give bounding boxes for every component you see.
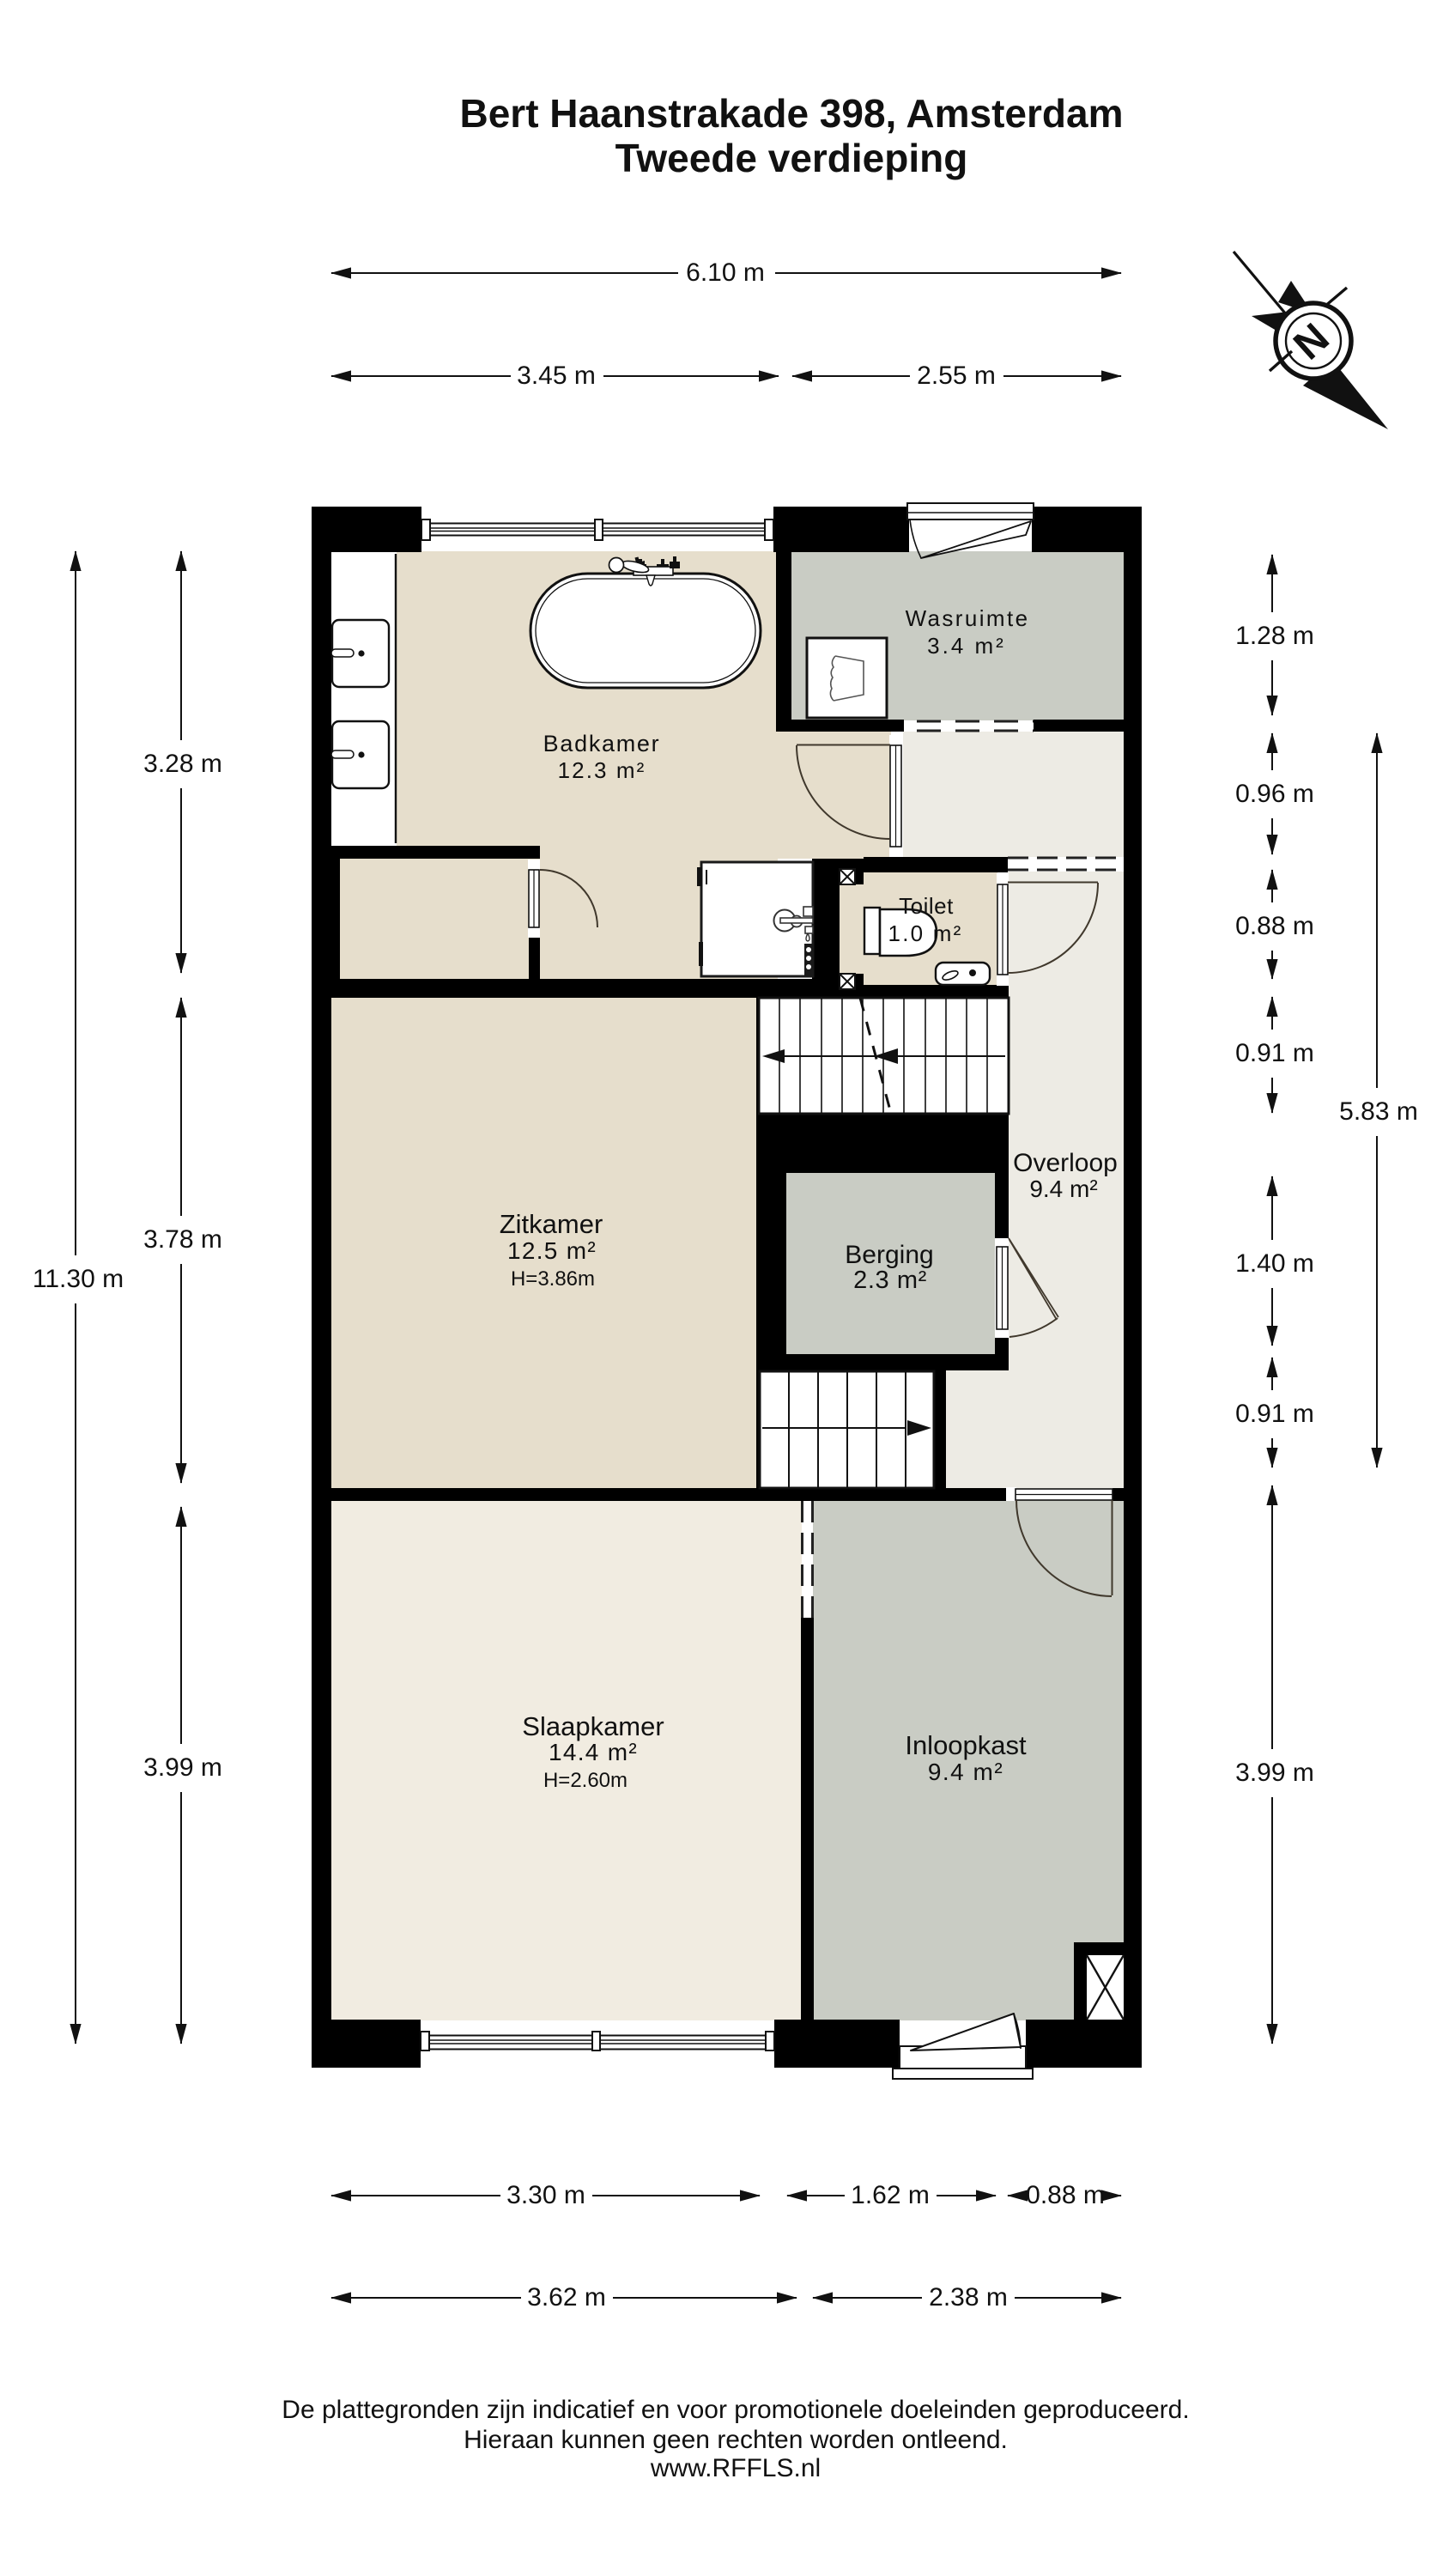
svg-text:De plattegronden zijn indicati: De plattegronden zijn indicatief en voor… bbox=[282, 2396, 1189, 2424]
svg-text:H=2.60m: H=2.60m bbox=[543, 1769, 627, 1792]
svg-text:12.5 m²: 12.5 m² bbox=[507, 1237, 597, 1264]
svg-text:2.38 m: 2.38 m bbox=[929, 2283, 1008, 2312]
svg-text:12.3 m²: 12.3 m² bbox=[558, 757, 646, 783]
svg-text:Toilet: Toilet bbox=[899, 893, 954, 919]
svg-text:1.40 m: 1.40 m bbox=[1235, 1249, 1314, 1278]
svg-text:11.30 m: 11.30 m bbox=[33, 1265, 124, 1293]
svg-text:3.45 m: 3.45 m bbox=[517, 361, 596, 390]
svg-text:Zitkamer: Zitkamer bbox=[500, 1209, 603, 1239]
svg-text:Overloop: Overloop bbox=[1013, 1149, 1118, 1177]
svg-text:Hieraan kunnen geen rechten wo: Hieraan kunnen geen rechten worden ontle… bbox=[464, 2426, 1008, 2454]
svg-text:0.91 m: 0.91 m bbox=[1235, 1039, 1314, 1067]
svg-text:3.30 m: 3.30 m bbox=[506, 2181, 585, 2209]
svg-text:Slaapkamer: Slaapkamer bbox=[522, 1711, 664, 1741]
svg-text:2.55 m: 2.55 m bbox=[917, 361, 996, 390]
svg-text:Badkamer: Badkamer bbox=[543, 731, 661, 756]
svg-text:Inloopkast: Inloopkast bbox=[905, 1730, 1027, 1760]
svg-text:2.3 m²: 2.3 m² bbox=[853, 1267, 927, 1294]
svg-text:0.88 m: 0.88 m bbox=[1235, 912, 1314, 940]
svg-text:1.28 m: 1.28 m bbox=[1235, 622, 1314, 650]
svg-text:H=3.86m: H=3.86m bbox=[511, 1267, 595, 1291]
svg-text:www.RFFLS.nl: www.RFFLS.nl bbox=[650, 2454, 821, 2482]
svg-text:Berging: Berging bbox=[845, 1241, 933, 1269]
svg-text:1.62 m: 1.62 m bbox=[851, 2181, 930, 2209]
svg-text:0.96 m: 0.96 m bbox=[1235, 780, 1314, 808]
svg-text:3.28 m: 3.28 m bbox=[143, 750, 222, 778]
svg-text:Wasruimte: Wasruimte bbox=[906, 605, 1030, 631]
svg-text:9.4 m²: 9.4 m² bbox=[1029, 1176, 1097, 1202]
svg-text:3.62 m: 3.62 m bbox=[527, 2283, 606, 2312]
svg-text:5.83 m: 5.83 m bbox=[1339, 1097, 1418, 1126]
svg-text:3.99 m: 3.99 m bbox=[1235, 1759, 1314, 1787]
svg-text:3.78 m: 3.78 m bbox=[143, 1225, 222, 1254]
svg-text:1.0 m²: 1.0 m² bbox=[888, 920, 963, 946]
svg-text:6.10 m: 6.10 m bbox=[686, 258, 765, 287]
svg-text:Bert Haanstrakade 398, Amsterd: Bert Haanstrakade 398, Amsterdam bbox=[460, 91, 1124, 136]
svg-text:Tweede verdieping: Tweede verdieping bbox=[615, 136, 968, 180]
svg-text:3.99 m: 3.99 m bbox=[143, 1753, 222, 1782]
svg-text:0.91 m: 0.91 m bbox=[1235, 1400, 1314, 1428]
svg-text:3.4 m²: 3.4 m² bbox=[927, 633, 1006, 659]
svg-text:0.88 m: 0.88 m bbox=[1026, 2181, 1105, 2209]
svg-text:14.4 m²: 14.4 m² bbox=[549, 1739, 638, 1765]
svg-text:9.4 m²: 9.4 m² bbox=[928, 1759, 1003, 1785]
